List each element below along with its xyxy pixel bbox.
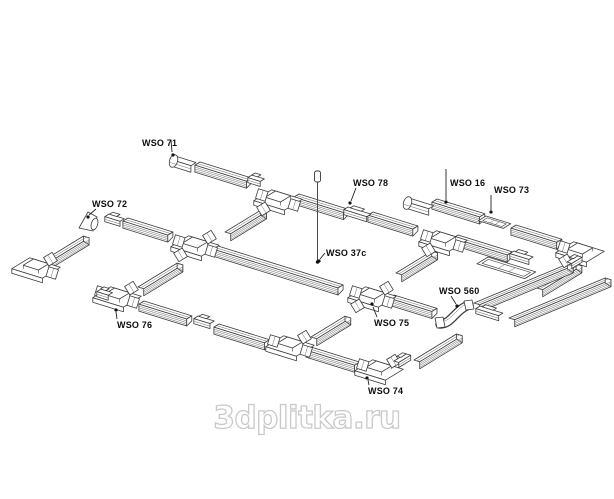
label-anchor-dot	[444, 200, 447, 203]
part-label-wso-73: WSO 73	[494, 185, 529, 195]
label-anchor-dot	[489, 210, 492, 213]
part-label-wso-71: WSO 71	[142, 138, 177, 148]
label-anchor-dot	[86, 215, 89, 218]
label-leader-line	[116, 312, 117, 319]
label-anchor-dot	[370, 302, 373, 305]
label-anchor-dot	[171, 153, 174, 156]
part-label-wso-72: WSO 72	[92, 199, 127, 209]
track-system-diagram: 3dplitka.ru WSO 71WSO 72WSO 78WSO 16WSO …	[0, 0, 614, 499]
label-anchor-dot	[365, 376, 368, 379]
part-label-wso-37c: WSO 37c	[326, 248, 366, 258]
label-anchor-dot	[348, 201, 351, 204]
watermark-layer: 3dplitka.ru	[213, 400, 400, 436]
watermark: 3dplitka.ru	[213, 400, 400, 436]
label-leader-line	[351, 188, 356, 201]
diagram-canvas: 3dplitka.ru WSO 71WSO 72WSO 78WSO 16WSO …	[0, 0, 614, 499]
part-label-wso-16: WSO 16	[450, 178, 485, 188]
label-leader-line	[368, 380, 369, 385]
label-anchor-dot	[455, 304, 458, 307]
part-label-wso-76: WSO 76	[117, 320, 152, 330]
part-label-wso-74: WSO 74	[368, 386, 403, 396]
label-anchor-dot	[317, 259, 320, 262]
label-leader-line	[320, 253, 325, 259]
label-leader-line	[451, 296, 456, 304]
part-label-wso-78: WSO 78	[353, 178, 388, 188]
part-label-wso-560: WSO 560	[439, 286, 479, 296]
suspension-mount-icon	[315, 171, 321, 182]
label-anchor-dot	[114, 308, 117, 311]
part-label-wso-75: WSO 75	[374, 318, 409, 328]
